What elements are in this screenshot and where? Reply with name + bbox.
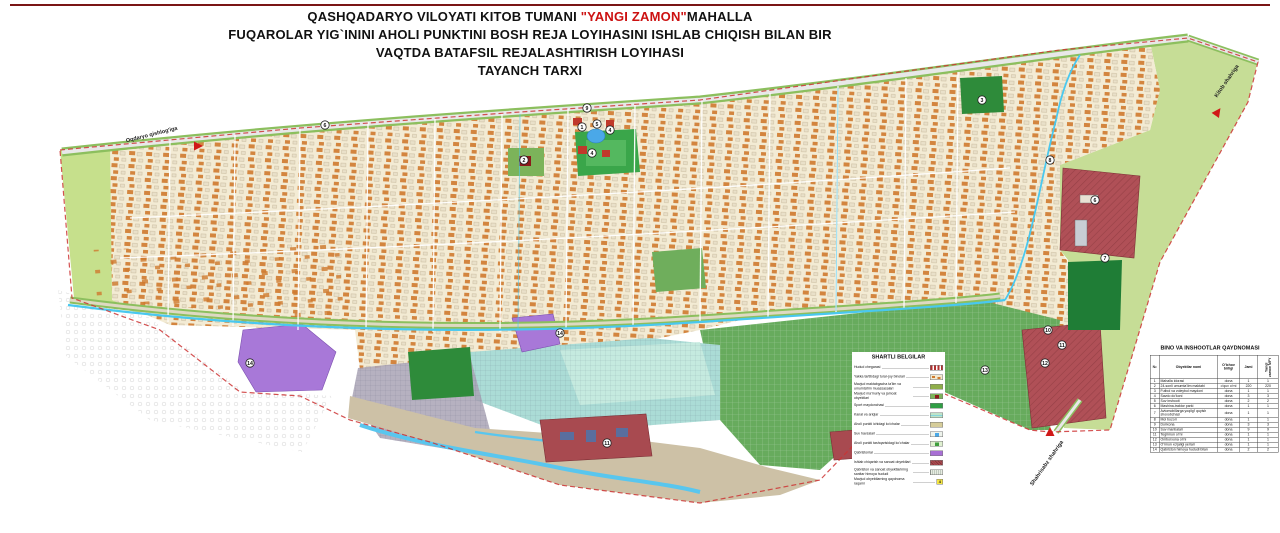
legend-color-swatch [930, 403, 943, 409]
legend-item: Aholi punkti ichidagi ko'chalar [854, 420, 943, 430]
map-marker-number: 10 [1045, 328, 1051, 334]
cell-name: Avtomobillarga yoqilg'i quyish shoxobcha… [1159, 409, 1218, 418]
legend-item: Sport maydonchasi [854, 401, 943, 411]
cell-no: 7 [1150, 409, 1159, 418]
legend-color-swatch [930, 375, 943, 381]
buildings-table-panel: BINO VA INSHOOTLAR QAYDNOMASI № Obyektla… [1150, 344, 1270, 453]
col-header-total: Jami [1239, 355, 1258, 379]
legend-item-label: Suv havzalari [854, 432, 875, 436]
map-marker-number: 1 [581, 125, 584, 131]
legend-leader [901, 424, 928, 425]
map-marker: 3 [978, 96, 986, 104]
legend-item: Aholi punkti tashqarisidagi ko'chalar [854, 439, 943, 449]
direction-label: Shahrisabz shahriga [1029, 439, 1065, 487]
legend-leader [885, 405, 928, 406]
map-marker: 5 [593, 120, 601, 128]
map-marker-number: 8 [1049, 158, 1052, 164]
title-highlight: "YANGI ZAMON" [581, 9, 687, 24]
title-line-4: TAYANCH TARXI [160, 62, 900, 80]
map-marker-number: 2 [523, 158, 526, 164]
map-marker: 2 [520, 156, 528, 164]
legend-color-swatch [930, 384, 943, 390]
legend-item-label: Aholi punkti tashqarisidagi ko'chalar [854, 442, 910, 446]
legend-items: Hudud chegarasiYakka tartibdagi turar-jo… [854, 363, 943, 487]
map-canvas: Oqdaryo qishlog'igaKitob shahrigaShahris… [0, 0, 1280, 533]
legend-color-swatch [930, 460, 943, 466]
legend-item-label: Aholi punkti ichidagi ko'chalar [854, 423, 900, 427]
map-marker-number: 6 [1094, 198, 1097, 204]
legend-leader [914, 396, 929, 397]
title-line-3: VAQTDA BATAFSIL REJALASHTIRISH LOYIHASI [160, 44, 900, 62]
masterplan-sheet: Oqdaryo qishlog'igaKitob shahrigaShahris… [0, 0, 1280, 533]
legend-panel: SHARTLI BELGILAR Hudud chegarasiYakka ta… [852, 352, 945, 488]
map-marker: 13 [981, 366, 989, 374]
cell-unit: dona [1218, 409, 1240, 418]
col-header-name: Obyektlar nomi [1159, 355, 1218, 379]
map-marker: 9 [583, 104, 591, 112]
map-marker: 14 [246, 359, 254, 367]
buildings-table: № Obyektlar nomi O'lchov birligi Jami Ya… [1150, 355, 1279, 453]
table-row: 7Avtomobillarga yoqilg'i quyish shoxobch… [1150, 409, 1278, 418]
map-marker: 8 [1046, 156, 1054, 164]
map-marker-number: 11 [1059, 343, 1065, 349]
title-line-2: FUQAROLAR YIG`ININI AHOLI PUNKTINI BOSH … [160, 26, 900, 44]
legend-item: Suv havzalari [854, 430, 943, 440]
legend-item-label: Mavjud ma'muriy va jamoat obyektlari [854, 392, 912, 400]
legend-item-label: Hudud chegarasi [854, 366, 880, 370]
cemetery-area [238, 324, 336, 392]
map-marker-number: 13 [982, 368, 988, 374]
legend-item: Kanal va ariqlar [854, 411, 943, 421]
legend-item: Mavjud ma'muriy va jamoat obyektlari [854, 392, 943, 402]
legend-item: Qabristonlar [854, 449, 943, 459]
legend-item: Ishlab chiqarish va sanoat obyektlari [854, 458, 943, 468]
map-marker-number: 5 [596, 122, 599, 128]
legend-item-label: Ishlab chiqarish va sanoat obyektlari [854, 461, 910, 465]
legend-item: Hudud chegarasi [854, 363, 943, 373]
map-marker-number: 14 [557, 331, 563, 337]
map-marker: 6 [321, 121, 329, 129]
map-marker: 11 [603, 439, 611, 447]
cell-name: Qabriston himoya hududi bilan [1159, 447, 1218, 452]
legend-leader [911, 443, 928, 444]
legend-item: Mavjud obyektlarning qaydnoma raqami4 [854, 477, 943, 487]
legend-item: Qabriston va sanoat obyektlarining sanit… [854, 468, 943, 478]
map-marker: 7 [1101, 254, 1109, 262]
legend-item-label: Mavjud obyektlarning qaydnoma raqami [854, 478, 912, 486]
title-block: QASHQADARYO VILOYATI KITOB TUMANI "YANGI… [160, 8, 900, 80]
legend-color-swatch [930, 394, 943, 400]
legend-title: SHARTLI BELGILAR [854, 354, 943, 360]
cell-mfy: 1 [1258, 409, 1279, 418]
legend-leader [906, 377, 928, 378]
legend-item-label: Qabristonlar [854, 451, 873, 455]
map-marker: 4 [606, 126, 614, 134]
map-marker: 6 [1091, 196, 1099, 204]
map-marker-number: 3 [981, 98, 984, 104]
legend-item-label: Kanal va ariqlar [854, 413, 878, 417]
map-marker-number: 4 [591, 151, 594, 157]
legend-leader [914, 481, 936, 482]
legend-leader [914, 472, 929, 473]
legend-leader [882, 367, 929, 368]
table-row: 14Qabriston himoya hududi bilandona22 [1150, 447, 1278, 452]
cell-no: 14 [1150, 447, 1159, 452]
legend-color-swatch [930, 470, 943, 476]
legend-item-label: Sport maydonchasi [854, 404, 884, 408]
legend-color-swatch [930, 432, 943, 438]
map-marker-number: 7 [1104, 256, 1107, 262]
map-marker-number: 4 [609, 128, 612, 134]
map-marker-number: 6 [324, 123, 327, 129]
cell-total: 1 [1239, 409, 1258, 418]
cell-unit: dona [1218, 447, 1240, 452]
legend-leader [875, 453, 929, 454]
legend-color-swatch [930, 422, 943, 428]
map-marker-number: 11 [604, 441, 610, 447]
map-marker: 1 [578, 123, 586, 131]
legend-item-label: Mavjud maktabgacha ta'lim va umumta'lim … [854, 383, 912, 391]
legend-item-label: Yakka tartibdagi turar-joy binolari [854, 375, 905, 379]
col-header-no: № [1150, 355, 1159, 379]
legend-item-label: Qabriston va sanoat obyektlarining sanit… [854, 468, 912, 476]
legend-number-swatch: 4 [937, 479, 944, 485]
legend-color-swatch [930, 441, 943, 447]
col-header-unit: O'lchov birligi [1218, 355, 1240, 379]
map-marker: 12 [1041, 359, 1049, 367]
map-marker-number: 12 [1042, 361, 1048, 367]
legend-item: Yakka tartibdagi turar-joy binolari [854, 373, 943, 383]
map-marker-number: 14 [247, 361, 253, 367]
map-marker: 10 [1044, 326, 1052, 334]
buildings-table-title: BINO VA INSHOOTLAR QAYDNOMASI [1150, 345, 1270, 351]
legend-color-swatch [930, 451, 943, 457]
map-marker: 14 [556, 329, 564, 337]
legend-leader [877, 434, 929, 435]
cell-total: 2 [1239, 447, 1258, 452]
legend-leader [880, 415, 929, 416]
legend-color-swatch [930, 413, 943, 419]
legend-leader [912, 462, 929, 463]
legend-leader [914, 386, 929, 387]
map-marker: 4 [588, 149, 596, 157]
cell-mfy: 2 [1258, 447, 1279, 452]
map-marker: 11 [1058, 341, 1066, 349]
legend-item: Mavjud maktabgacha ta'lim va umumta'lim … [854, 382, 943, 392]
col-header-mfy: Yangi zamon MFY [1258, 355, 1279, 379]
title-line-1: QASHQADARYO VILOYATI KITOB TUMANI "YANGI… [160, 8, 900, 26]
map-marker-number: 9 [586, 106, 589, 112]
legend-color-swatch [930, 365, 943, 371]
